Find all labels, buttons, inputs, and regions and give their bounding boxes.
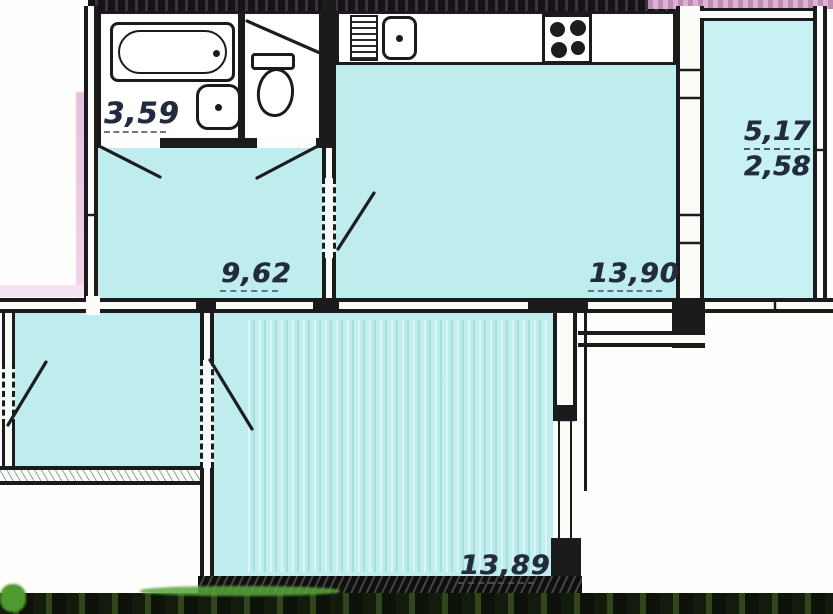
stove-burner [551,42,567,58]
label-underline [458,570,534,584]
bathtub-drain [213,50,220,57]
label-underline [588,278,662,292]
sub-balcony-wall [578,331,705,347]
cross-wall-passage-gap [86,296,100,315]
left-exterior-wall [84,6,98,302]
toilet-bowl [255,66,297,119]
living-room-window [558,421,572,539]
bathtub-inner [118,30,227,74]
grass-streak [140,586,340,596]
small-room-window-wall [0,466,214,485]
kitchen-sink-drain [396,35,403,42]
living-room-right-wall [553,313,577,408]
living-room-door-opening [200,360,214,468]
wc-door-gap [257,138,316,148]
kitchen-wall-lower [322,258,336,302]
stove-burner [550,22,565,37]
top-wall-band [88,0,704,11]
stove [542,14,592,64]
scan-stripe-texture [248,320,548,572]
fraction-bar [744,148,810,150]
kitchen-sink [382,16,417,60]
main-cross-wall [0,298,833,313]
balcony-area-total: 5,17 [742,118,812,145]
cross-wall-cap [196,298,216,313]
kitchen-wall-upper [322,0,336,148]
drainboard [350,15,378,61]
balcony-area-label: 5,17 2,58 [742,118,812,180]
label-underline [220,278,278,292]
pink-scan-strip-mid [0,285,84,297]
small-room-balcony-opening [2,363,15,425]
outer-edge-line [584,313,587,491]
sink-drain [215,104,222,111]
bottom-scan-band [0,593,833,614]
stove-burner [571,41,585,55]
small-room-left-wall [2,313,15,363]
bathroom-sink [196,84,241,130]
living-room-right-wall-cap [553,405,577,421]
cross-wall-cap [313,298,339,313]
kitchen-door-opening [322,178,336,258]
small-room-floor [15,313,200,466]
bathtub [110,22,235,82]
balcony-area-reduced: 2,58 [742,153,812,180]
small-room-left-wall [2,425,15,468]
floor-plan: 3,59 9,62 13,90 13,89 5,17 2,58 [0,0,833,614]
kitchen-wall-mid [322,148,336,178]
cross-wall-cap [528,298,588,313]
bathroom-door-gap [101,138,160,148]
living-room-left-wall [200,468,214,578]
toilet [251,53,295,119]
balcony-top-window-wall [700,8,827,21]
balcony-right-wall [813,6,827,306]
kitchen-balcony-wall [676,6,704,298]
living-room-left-wall [200,313,214,360]
stove-burner [570,20,586,36]
label-underline [104,119,166,133]
grass-blob [0,584,26,612]
